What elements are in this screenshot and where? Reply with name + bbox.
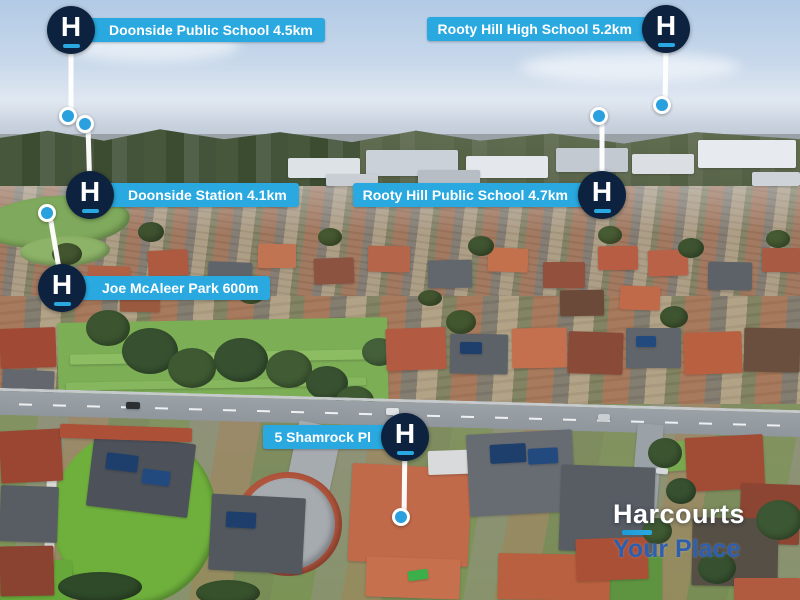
harcourts-logo: Harcourts Your Place xyxy=(613,500,745,562)
marker-label: Rooty Hill High School 5.2km xyxy=(427,17,666,41)
marker-label: Rooty Hill Public School 4.7km xyxy=(353,183,602,207)
badge-letter: H xyxy=(592,178,612,206)
harcourts-badge: H xyxy=(381,413,429,461)
badge-letter: H xyxy=(395,420,415,448)
badge-underline xyxy=(658,43,675,47)
badge-letter: H xyxy=(52,271,72,299)
map-pin-dot-rooty-hill-high-school xyxy=(653,96,671,114)
harcourts-badge: H xyxy=(66,171,114,219)
harcourts-tagline: Your Place xyxy=(613,537,745,562)
badge-underline xyxy=(82,209,99,213)
harcourts-badge: H xyxy=(578,171,626,219)
badge-underline xyxy=(397,451,414,455)
marker-label: Doonside Station 4.1km xyxy=(104,183,299,207)
map-pin-dot-property xyxy=(392,508,410,526)
harcourts-wordmark: Harcourts xyxy=(613,500,745,530)
badge-letter: H xyxy=(80,178,100,206)
harcourts-badge: H xyxy=(642,5,690,53)
harcourts-badge: H xyxy=(38,264,86,312)
aerial-listing-photo: Doonside Public School 4.5km H Rooty Hil… xyxy=(0,0,800,600)
map-pin-dot-doonside-station xyxy=(76,115,94,133)
harcourts-badge: H xyxy=(47,6,95,54)
map-pin-dot-rooty-hill-public-school xyxy=(590,107,608,125)
map-pin-dot-joe-mcaleer-park xyxy=(38,204,56,222)
logo-underline xyxy=(622,530,652,535)
badge-underline xyxy=(54,302,71,306)
map-pin-dot-doonside-public-school xyxy=(59,107,77,125)
marker-label: Doonside Public School 4.5km xyxy=(87,18,325,42)
badge-underline xyxy=(594,209,611,213)
badge-underline xyxy=(63,44,80,48)
marker-label: Joe McAleer Park 600m xyxy=(76,276,270,300)
badge-letter: H xyxy=(656,12,676,40)
badge-letter: H xyxy=(61,13,81,41)
